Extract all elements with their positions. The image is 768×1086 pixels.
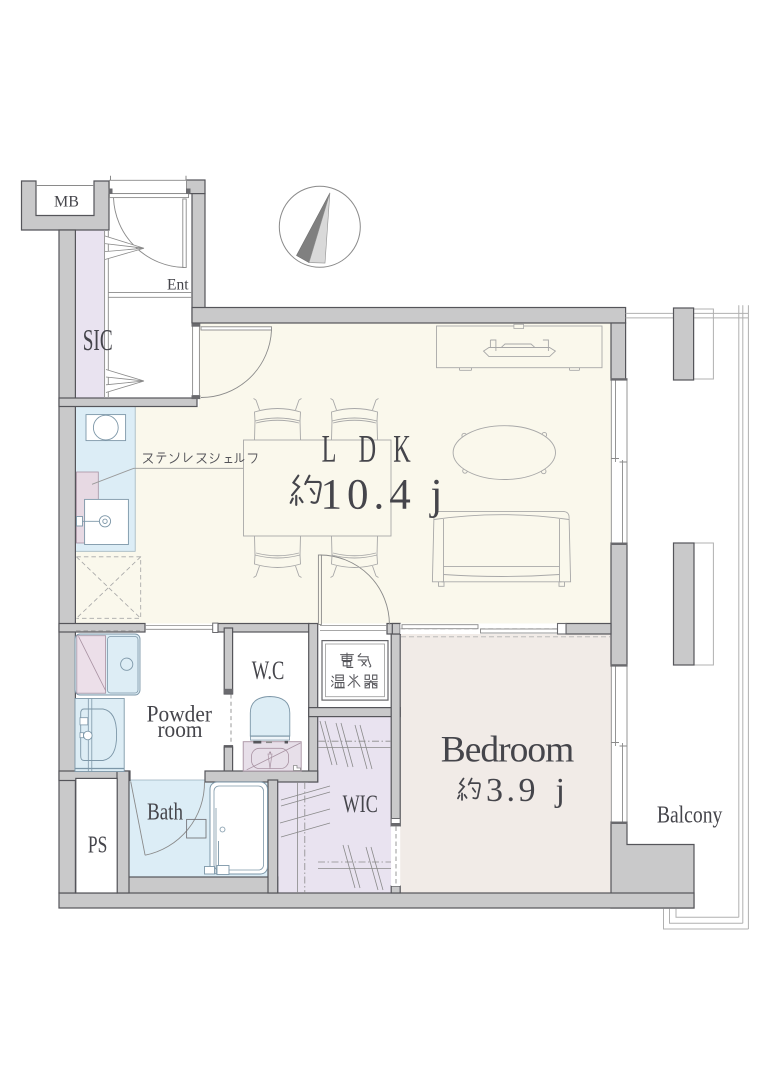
svg-text:room: room [157, 716, 202, 742]
svg-text:Bedroom: Bedroom [441, 729, 574, 770]
svg-text:10.4: 10.4 [321, 472, 416, 519]
svg-text:PS: PS [88, 830, 107, 858]
svg-text:K: K [393, 428, 411, 471]
svg-text:SIC: SIC [83, 322, 113, 357]
svg-text:WIC: WIC [343, 789, 378, 818]
svg-text:Ent: Ent [167, 277, 189, 294]
svg-text:3.9: 3.9 [486, 772, 539, 809]
svg-text:Bath: Bath [147, 797, 183, 825]
svg-text:j: j [429, 472, 443, 519]
svg-text:Balcony: Balcony [657, 801, 723, 828]
svg-text:W.C: W.C [252, 656, 285, 685]
svg-text:j: j [555, 772, 565, 809]
svg-text:MB: MB [54, 194, 79, 211]
svg-text:L: L [322, 428, 337, 471]
svg-text:D: D [359, 428, 376, 471]
